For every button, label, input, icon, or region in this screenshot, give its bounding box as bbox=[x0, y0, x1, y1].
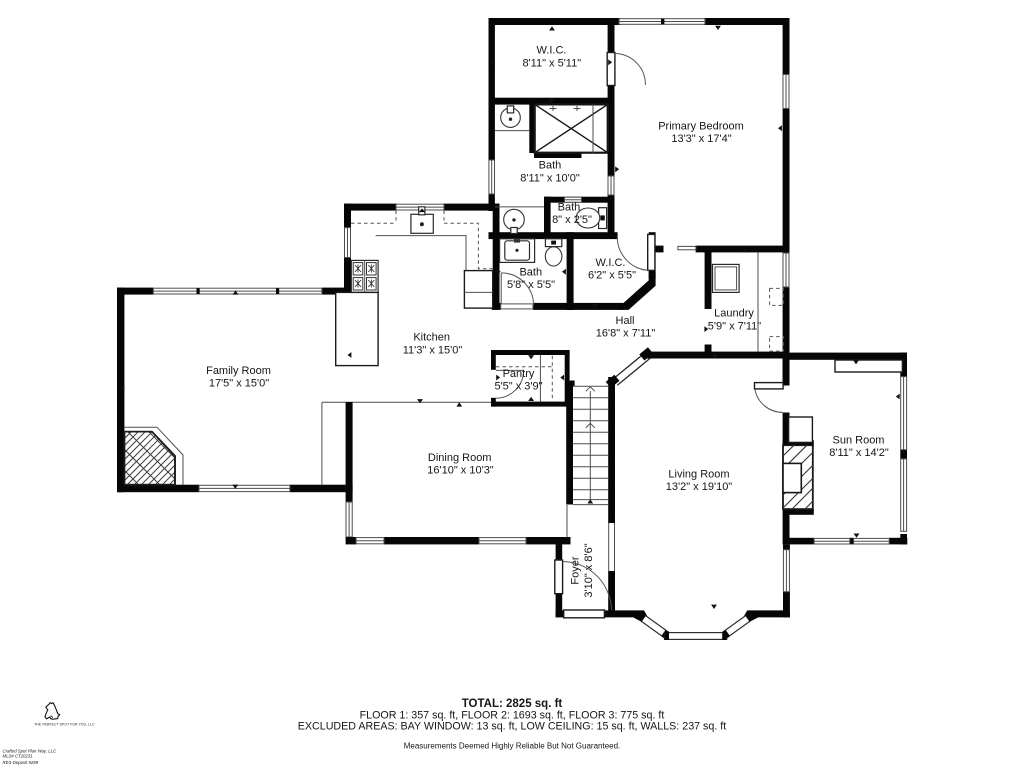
svg-text:Hall: Hall bbox=[616, 315, 635, 327]
svg-text:Bath: Bath bbox=[539, 160, 562, 172]
svg-text:Pantry: Pantry bbox=[503, 368, 535, 380]
svg-text:Bath: Bath bbox=[519, 266, 542, 278]
svg-text:Dining Room: Dining Room bbox=[428, 452, 492, 464]
svg-text:RES-Deposit 9289: RES-Deposit 9289 bbox=[3, 760, 39, 765]
svg-text:5'5" x 3'9": 5'5" x 3'9" bbox=[494, 381, 542, 393]
svg-text:Kitchen: Kitchen bbox=[413, 332, 450, 344]
svg-text:17'5" x 15'0": 17'5" x 15'0" bbox=[209, 378, 269, 390]
svg-text:5'9" x 7'11": 5'9" x 7'11" bbox=[708, 320, 761, 332]
svg-text:8" x 2'5": 8" x 2'5" bbox=[552, 214, 592, 226]
svg-text:16'10" x 10'3": 16'10" x 10'3" bbox=[427, 465, 494, 477]
svg-text:Primary Bedroom: Primary Bedroom bbox=[658, 120, 744, 132]
svg-text:EXCLUDED AREAS: BAY WINDOW: 13: EXCLUDED AREAS: BAY WINDOW: 13 sq. ft, L… bbox=[298, 721, 726, 733]
svg-text:Living Room: Living Room bbox=[668, 468, 729, 480]
svg-text:8'11" x 10'0": 8'11" x 10'0" bbox=[520, 172, 580, 184]
svg-text:W.I.C.: W.I.C. bbox=[537, 45, 567, 57]
svg-text:8'11" x 5'11": 8'11" x 5'11" bbox=[522, 58, 581, 70]
svg-text:W.I.C.: W.I.C. bbox=[596, 257, 626, 269]
svg-text:Laundry: Laundry bbox=[714, 308, 754, 320]
svg-text:THE PERFECT SPOT FOR YOU, LLC: THE PERFECT SPOT FOR YOU, LLC bbox=[34, 723, 95, 727]
svg-text:8'11" x 14'2": 8'11" x 14'2" bbox=[829, 447, 889, 459]
svg-text:TOTAL: 2825 sq. ft: TOTAL: 2825 sq. ft bbox=[462, 698, 563, 710]
svg-text:13'2" x 19'10": 13'2" x 19'10" bbox=[666, 481, 733, 493]
svg-text:Measurements Deemed Highly Rel: Measurements Deemed Highly Reliable But … bbox=[404, 742, 621, 751]
svg-text:13'3" x 17'4": 13'3" x 17'4" bbox=[671, 133, 731, 145]
svg-text:6'2" x 5'5": 6'2" x 5'5" bbox=[588, 270, 636, 282]
svg-text:3'10" x 8'6": 3'10" x 8'6" bbox=[583, 543, 595, 597]
svg-text:Sun Room: Sun Room bbox=[833, 434, 885, 446]
svg-text:Bath: Bath bbox=[558, 201, 581, 213]
svg-text:Family Room: Family Room bbox=[206, 365, 271, 377]
svg-text:16'8" x 7'11": 16'8" x 7'11" bbox=[596, 328, 656, 340]
svg-text:MLS# CT20231: MLS# CT20231 bbox=[3, 754, 34, 759]
svg-text:11'3" x 15'0": 11'3" x 15'0" bbox=[403, 345, 463, 357]
svg-text:5'8" x 5'5": 5'8" x 5'5" bbox=[507, 279, 555, 291]
svg-text:Foyer: Foyer bbox=[570, 556, 582, 584]
